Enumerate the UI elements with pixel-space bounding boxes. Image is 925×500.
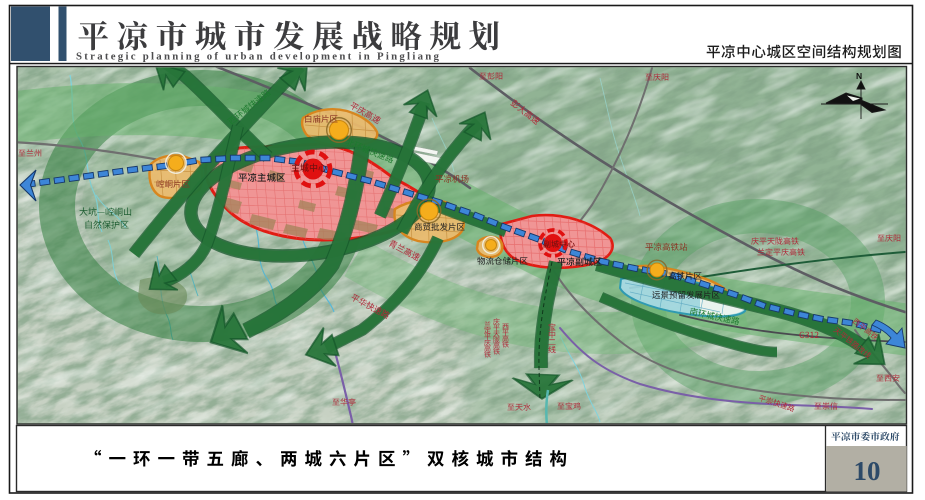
svg-text:Strategic planning of urban de: Strategic planning of urban development … <box>76 51 441 63</box>
svg-text:10: 10 <box>854 456 881 486</box>
svg-text:N: N <box>856 71 862 81</box>
